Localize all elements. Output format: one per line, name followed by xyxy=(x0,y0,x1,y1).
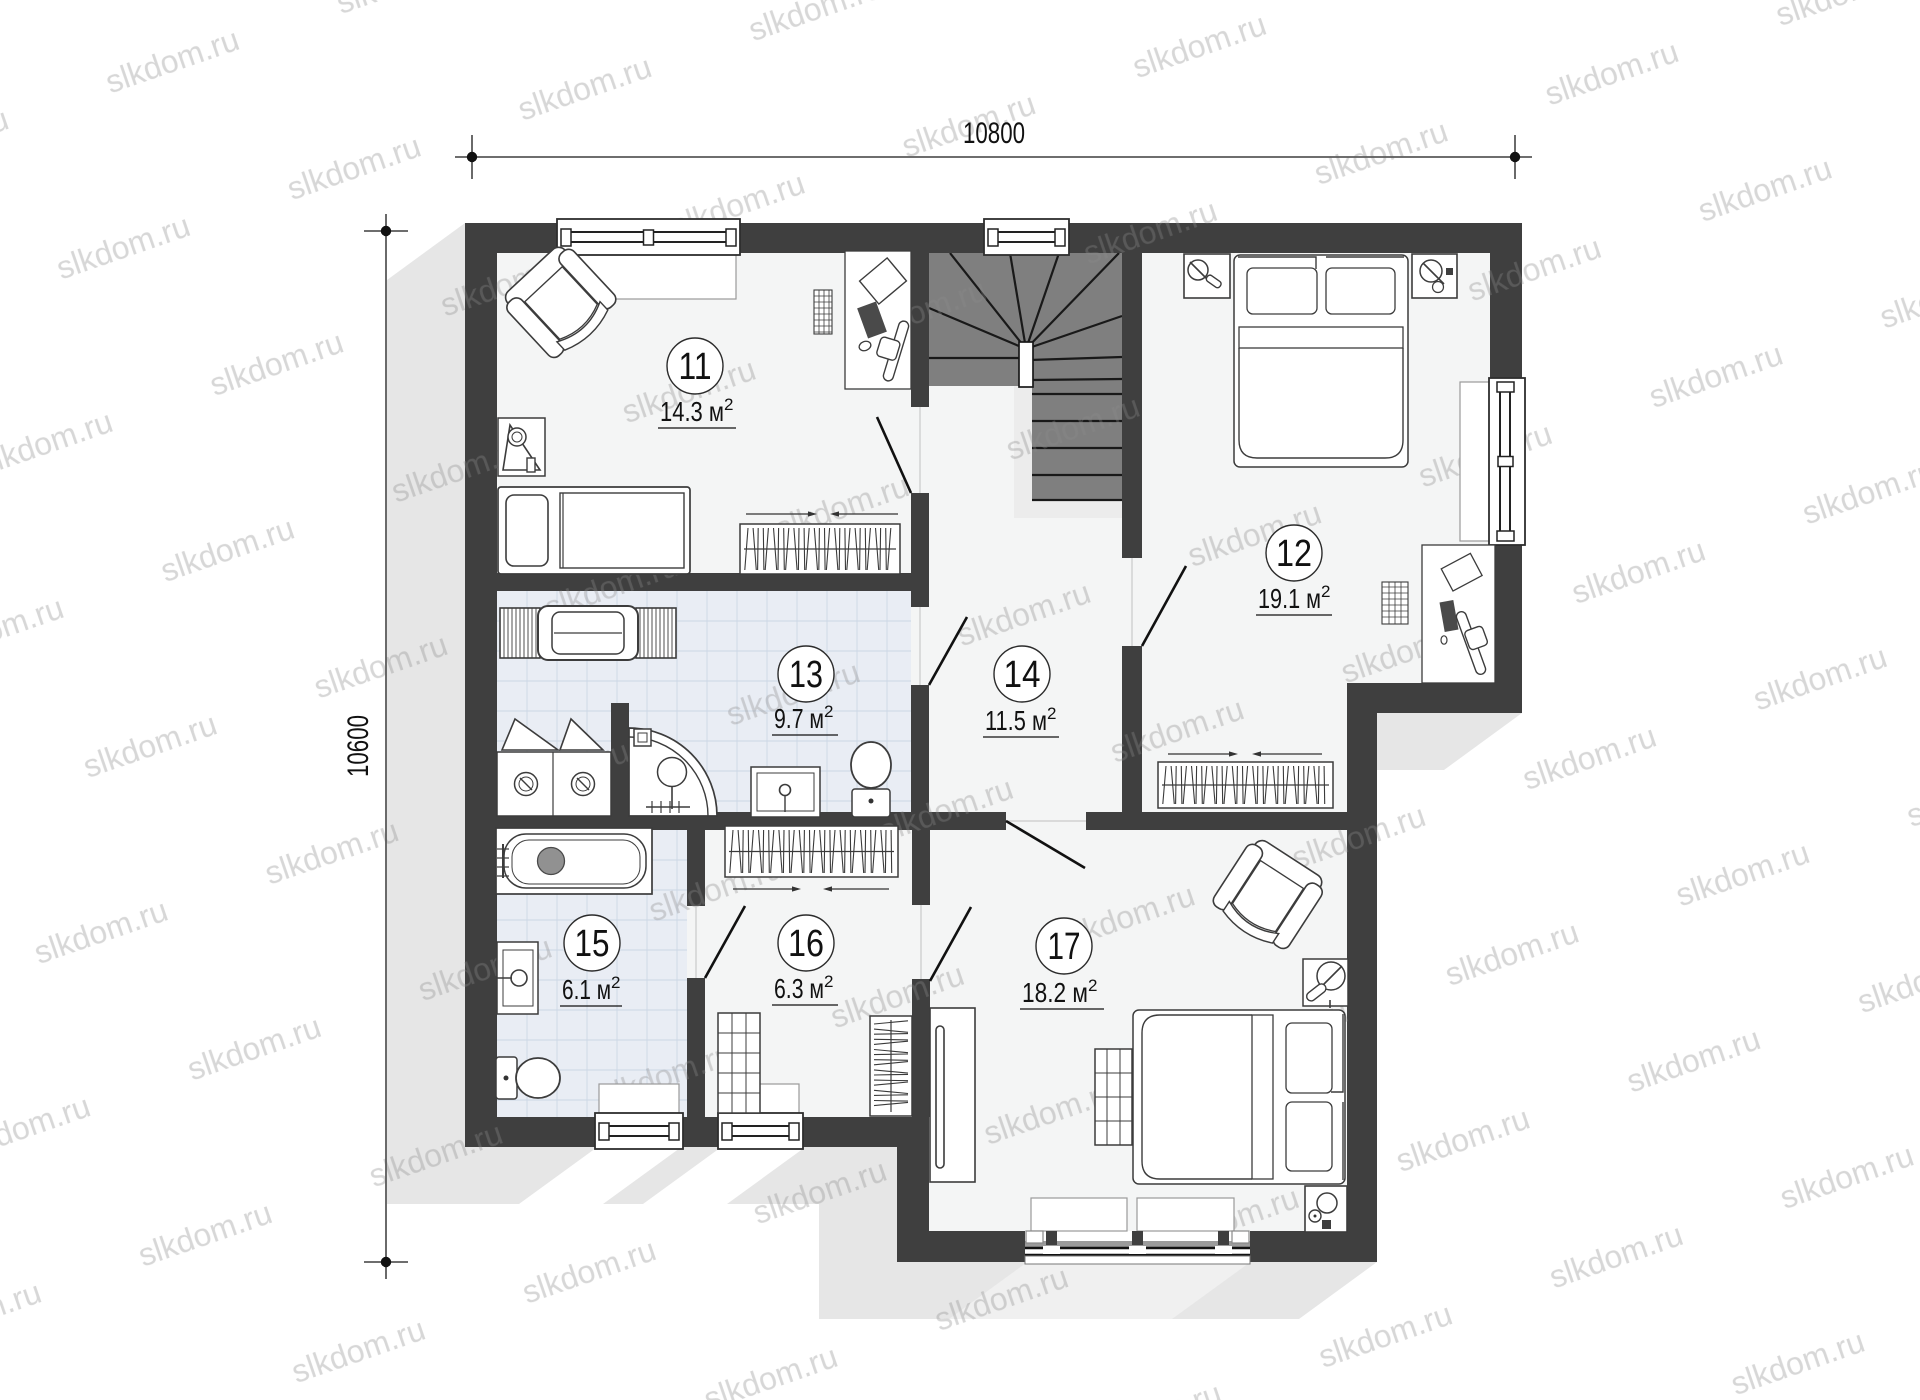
svg-text:16: 16 xyxy=(788,923,824,965)
svg-text:2: 2 xyxy=(1047,704,1056,723)
svg-text:18.2 м: 18.2 м xyxy=(1022,977,1088,1008)
svg-text:10800: 10800 xyxy=(963,117,1025,150)
svg-text:19.1 м: 19.1 м xyxy=(1258,583,1321,614)
svg-text:15: 15 xyxy=(575,923,610,965)
svg-text:14: 14 xyxy=(1004,654,1041,696)
svg-text:2: 2 xyxy=(724,395,733,414)
svg-text:11.5 м: 11.5 м xyxy=(985,705,1047,736)
svg-text:9.7 м: 9.7 м xyxy=(774,703,824,734)
svg-text:14.3 м: 14.3 м xyxy=(660,396,724,427)
svg-text:17: 17 xyxy=(1048,926,1081,968)
svg-text:10600: 10600 xyxy=(342,715,375,777)
svg-text:6.1 м: 6.1 м xyxy=(562,974,611,1005)
svg-text:2: 2 xyxy=(1321,582,1330,601)
svg-text:11: 11 xyxy=(679,346,712,388)
svg-text:2: 2 xyxy=(824,972,833,991)
svg-text:13: 13 xyxy=(789,654,823,696)
svg-text:12: 12 xyxy=(1276,533,1312,575)
svg-text:2: 2 xyxy=(824,702,833,721)
svg-text:6.3 м: 6.3 м xyxy=(774,973,824,1004)
svg-text:2: 2 xyxy=(1088,976,1097,995)
svg-text:2: 2 xyxy=(611,973,620,992)
